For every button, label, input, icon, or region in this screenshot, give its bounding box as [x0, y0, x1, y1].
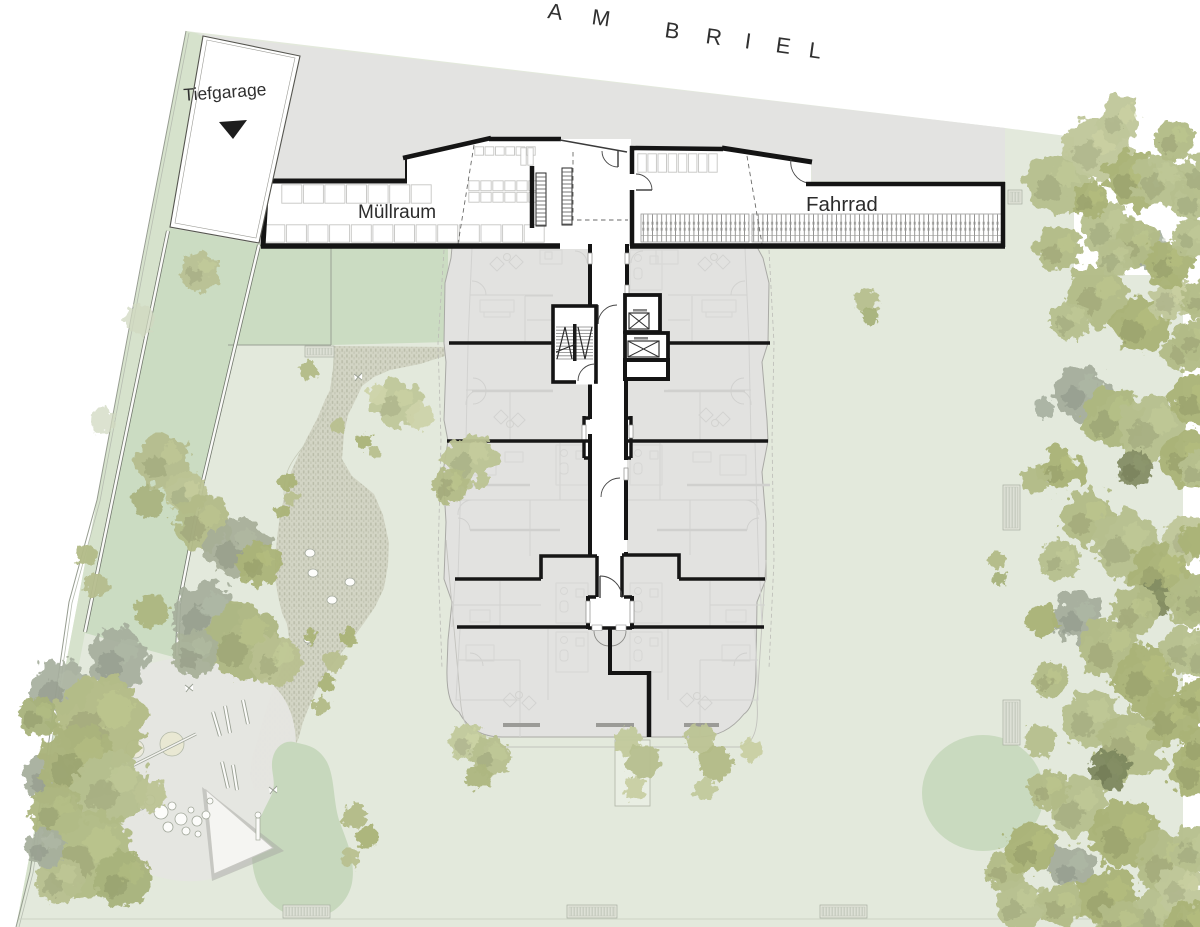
- svg-text:Fahrrad: Fahrrad: [806, 193, 878, 216]
- svg-text:M: M: [590, 4, 612, 31]
- svg-text:Müllraum: Müllraum: [358, 202, 436, 223]
